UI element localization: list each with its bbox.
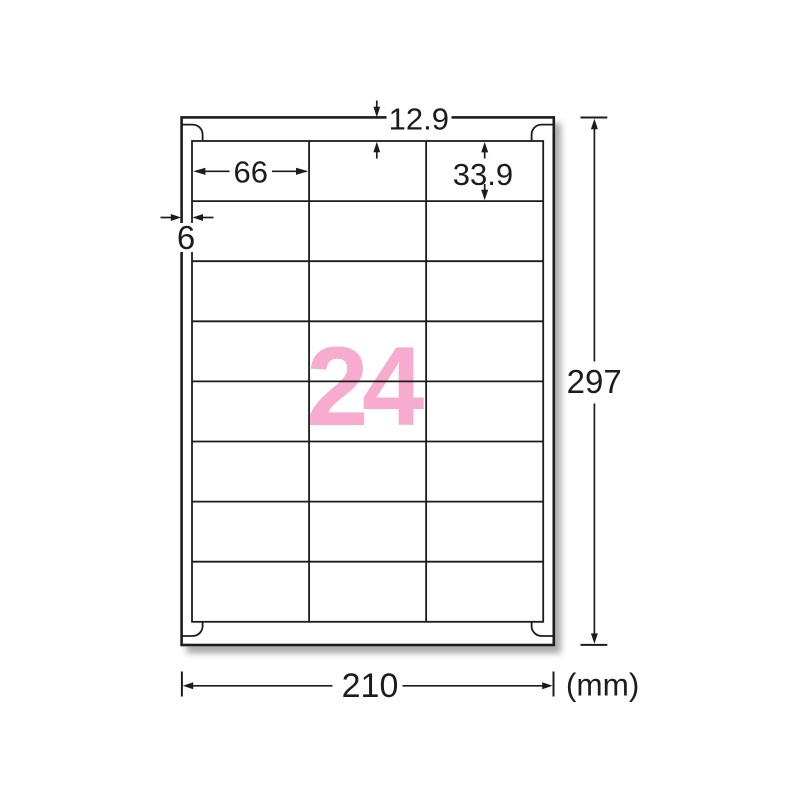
svg-text:297: 297 <box>567 363 622 400</box>
svg-text:210: 210 <box>342 667 399 705</box>
svg-text:12.9: 12.9 <box>389 102 449 137</box>
svg-text:24: 24 <box>306 324 424 449</box>
svg-text:(mm): (mm) <box>566 667 639 703</box>
svg-text:66: 66 <box>233 154 267 189</box>
svg-text:33.9: 33.9 <box>453 157 513 192</box>
svg-text:6: 6 <box>177 219 195 256</box>
